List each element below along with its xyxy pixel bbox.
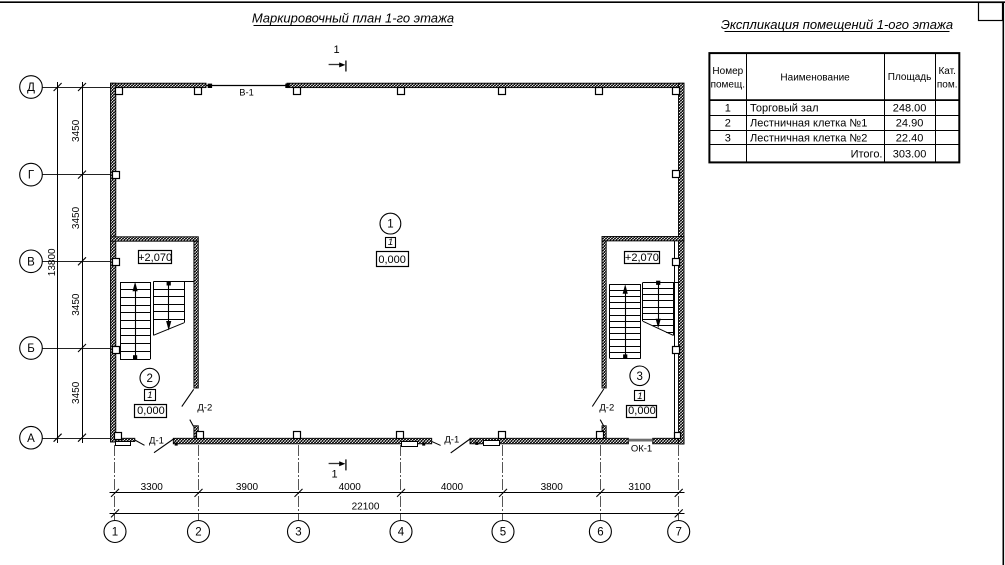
svg-text:4000: 4000 (441, 482, 464, 493)
svg-text:3: 3 (725, 132, 731, 144)
svg-text:13800: 13800 (47, 248, 58, 276)
svg-text:Наименование: Наименование (780, 73, 850, 84)
svg-text:1: 1 (333, 44, 339, 56)
svg-text:4000: 4000 (339, 482, 362, 493)
svg-text:5: 5 (500, 527, 506, 539)
svg-text:1: 1 (387, 219, 393, 231)
svg-text:Б: Б (27, 343, 35, 355)
svg-text:Д-2: Д-2 (197, 403, 212, 414)
svg-text:ОК-1: ОК-1 (631, 444, 652, 455)
svg-text:Д-1: Д-1 (444, 434, 459, 445)
svg-text:4: 4 (398, 527, 405, 539)
svg-text:Маркировочный план 1-го этажа: Маркировочный план 1-го этажа (252, 11, 454, 26)
svg-text:2: 2 (195, 527, 201, 539)
svg-text:2: 2 (725, 118, 731, 130)
svg-text:Д: Д (27, 82, 35, 94)
svg-text:В: В (27, 256, 35, 268)
svg-text:22.40: 22.40 (896, 132, 924, 144)
svg-text:0,000: 0,000 (137, 405, 165, 417)
svg-text:Торговый зал: Торговый зал (750, 102, 819, 114)
svg-text:3800: 3800 (541, 482, 564, 493)
svg-text:А: А (27, 433, 35, 445)
svg-text:3900: 3900 (236, 482, 259, 493)
svg-text:Итого.: Итого. (851, 148, 883, 160)
svg-text:Д-1: Д-1 (149, 436, 164, 447)
svg-text:3450: 3450 (71, 381, 82, 404)
svg-text:3450: 3450 (71, 119, 82, 142)
svg-text:Площадь: Площадь (888, 72, 932, 83)
svg-text:1: 1 (147, 390, 152, 401)
svg-text:248.00: 248.00 (893, 102, 927, 114)
svg-text:3: 3 (636, 371, 642, 383)
svg-text:0,000: 0,000 (378, 254, 406, 266)
svg-text:3450: 3450 (71, 293, 82, 316)
svg-text:3450: 3450 (71, 206, 82, 229)
svg-text:3: 3 (295, 527, 301, 539)
svg-text:Д-2: Д-2 (599, 403, 614, 414)
svg-text:помещ.: помещ. (711, 80, 745, 91)
svg-text:+2,070: +2,070 (625, 252, 659, 264)
svg-text:6: 6 (597, 527, 603, 539)
svg-text:303.00: 303.00 (893, 148, 927, 160)
svg-text:0,000: 0,000 (628, 405, 656, 417)
svg-text:3300: 3300 (141, 482, 164, 493)
svg-text:Кат.: Кат. (938, 66, 955, 77)
svg-text:Экспликация помещений 1-ого эт: Экспликация помещений 1-ого этажа (721, 17, 953, 32)
svg-text:2: 2 (146, 373, 152, 385)
svg-text:Лестничная клетка №2: Лестничная клетка №2 (750, 132, 867, 144)
svg-text:1: 1 (112, 527, 118, 539)
svg-text:1: 1 (331, 469, 337, 481)
svg-text:Г: Г (28, 170, 35, 182)
svg-text:Лестничная клетка №1: Лестничная клетка №1 (750, 118, 867, 130)
svg-text:1: 1 (388, 237, 393, 248)
svg-text:В-1: В-1 (239, 88, 253, 98)
svg-text:+2,070: +2,070 (138, 252, 172, 264)
svg-text:1: 1 (637, 391, 642, 402)
svg-text:Номер: Номер (712, 66, 743, 77)
svg-text:3100: 3100 (628, 482, 651, 493)
svg-text:1: 1 (725, 102, 731, 114)
svg-text:пом.: пом. (937, 80, 958, 91)
svg-text:22100: 22100 (352, 501, 380, 512)
svg-text:24.90: 24.90 (896, 118, 924, 130)
svg-text:7: 7 (675, 527, 681, 539)
